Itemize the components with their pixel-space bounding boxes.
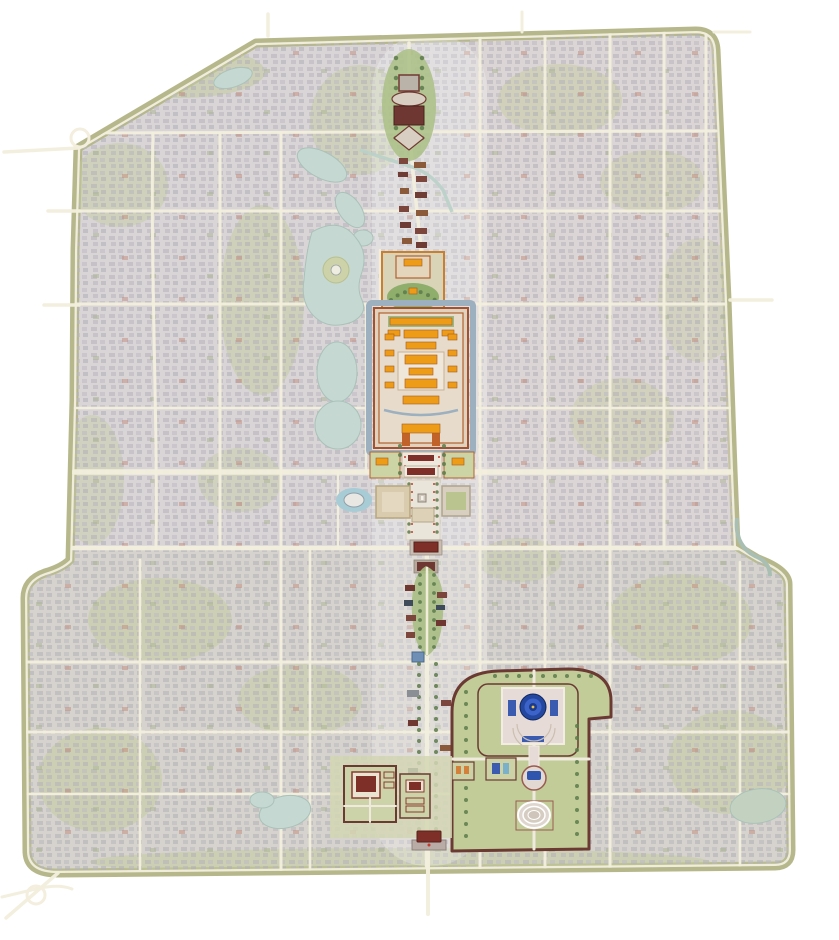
imperial-vault-of-heaven — [522, 766, 546, 790]
bell-drum-precinct — [382, 49, 436, 161]
great-hall-of-the-people — [376, 486, 410, 518]
beijing-central-axis-map: Illustrated bird's-eye map of old Beijin… — [0, 0, 839, 940]
hall-of-central-harmony — [409, 368, 433, 375]
bell-tower-plaza — [392, 92, 426, 106]
tianqiao-building — [412, 652, 424, 662]
forbidden-city — [369, 303, 473, 453]
duanmen-gate — [408, 455, 434, 461]
mao-mausoleum — [412, 508, 434, 522]
monument-to-peoples-heroes — [418, 494, 426, 502]
yongdingmen-gate — [412, 831, 446, 850]
danbi-bridge — [529, 746, 539, 766]
zhengyangmen-gate — [410, 540, 442, 555]
jingshan-hill — [387, 283, 439, 311]
ncpa-opera-house — [336, 488, 372, 512]
national-museum — [442, 486, 470, 516]
temple-of-heaven — [452, 669, 611, 851]
wanchun-pavilion — [409, 288, 417, 294]
drum-tower — [394, 106, 424, 125]
lake-zhonghai — [317, 342, 357, 402]
screenshot-root: Illustrated bird's-eye map of old Beijin… — [0, 0, 839, 940]
tiananmen-gate — [404, 466, 438, 477]
hall-of-preserving-harmony — [405, 379, 437, 388]
jade-island — [323, 257, 349, 283]
bell-tower — [399, 75, 419, 91]
hall-of-supreme-harmony — [405, 355, 437, 364]
lake-nanhai — [315, 401, 361, 449]
hall-of-prayer-for-good-harvests — [502, 688, 564, 749]
xiannongtan-temple — [330, 756, 452, 838]
gate-of-supreme-harmony — [403, 396, 439, 404]
